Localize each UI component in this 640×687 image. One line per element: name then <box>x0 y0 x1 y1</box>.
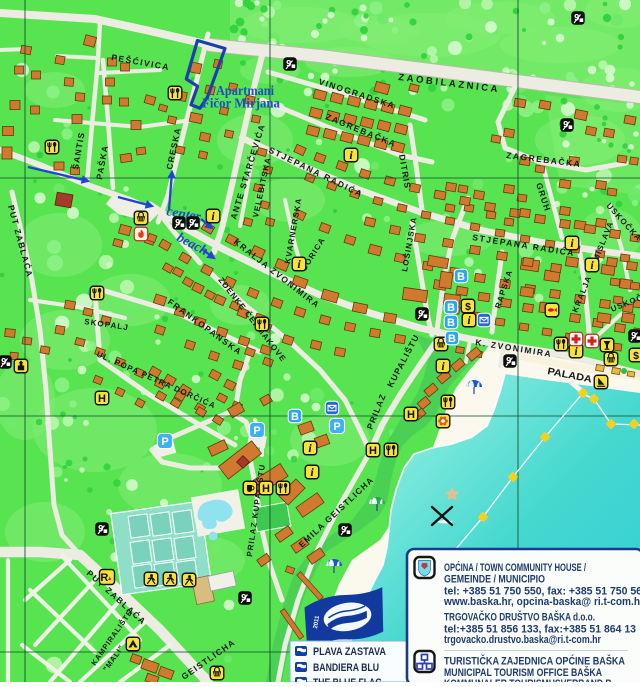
svg-text:B: B <box>448 333 456 345</box>
svg-text:THE BLUE FLAG: THE BLUE FLAG <box>313 677 382 682</box>
svg-text:P: P <box>161 436 168 448</box>
svg-text:B: B <box>457 271 465 283</box>
svg-text:B: B <box>291 411 299 423</box>
svg-text:$: $ <box>465 301 471 313</box>
svg-text:PLAVA ZASTAVA: PLAVA ZASTAVA <box>313 646 386 658</box>
svg-text:H: H <box>98 393 106 405</box>
svg-text:KOMMUNALER TOURISMUSVERBAND B.: KOMMUNALER TOURISMUSVERBAND B. <box>444 678 614 682</box>
svg-text:B: B <box>447 302 455 314</box>
svg-text:H: H <box>262 483 270 495</box>
svg-text:BANDIERA BLU: BANDIERA BLU <box>313 662 379 674</box>
svg-text:TRGOVAČKO DRUŠTVO BAŠKA d.o.o.: TRGOVAČKO DRUŠTVO BAŠKA d.o.o. <box>444 611 595 624</box>
svg-text:TURISTIČKA ZAJEDNICA OPĆINE BA: TURISTIČKA ZAJEDNICA OPĆINE BAŠKA <box>444 655 625 668</box>
svg-text:R: R <box>100 572 108 584</box>
svg-text:$: $ <box>633 350 639 362</box>
svg-text:OPĆINA / TOWN COMMUNITY HOUSE: OPĆINA / TOWN COMMUNITY HOUSE / <box>444 561 586 574</box>
svg-text:P: P <box>253 425 260 437</box>
svg-text:H: H <box>369 445 377 457</box>
svg-text:trgovacko.drustvo.baska@ri.t-c: trgovacko.drustvo.baska@ri.t-com.hr <box>444 634 601 646</box>
svg-text:H: H <box>407 409 415 421</box>
svg-text:www.baska.hr, opcina-baska@ r: www.baska.hr, opcina-baska@ ri.t-com.h <box>443 596 640 608</box>
svg-text:P: P <box>333 421 340 433</box>
svg-text:B: B <box>447 317 455 329</box>
svg-text:GEMEINDE / MUNICIPIO: GEMEINDE / MUNICIPIO <box>444 574 545 586</box>
svg-text:Fičor Mirjana: Fičor Mirjana <box>202 96 280 111</box>
